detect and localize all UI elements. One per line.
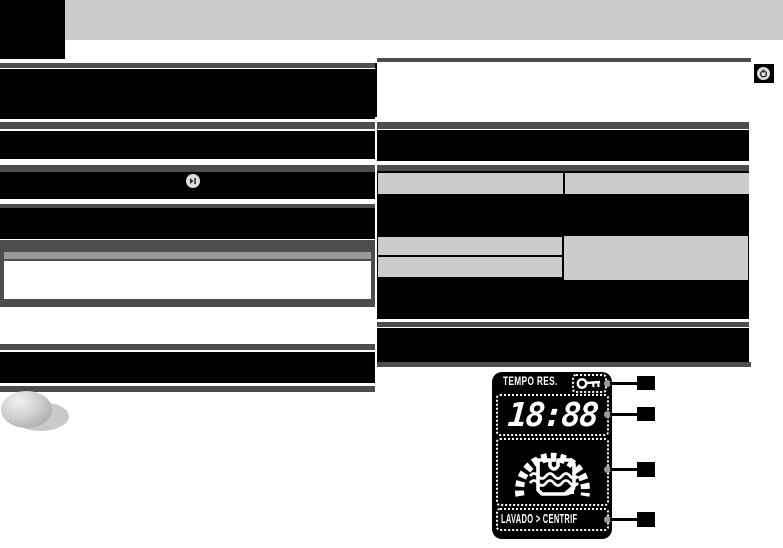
redacted-text-block <box>377 196 749 236</box>
redacted-text-block <box>0 208 375 239</box>
margin-rule <box>375 63 377 117</box>
power-icon <box>757 67 770 80</box>
callout-marker-1 <box>637 376 655 390</box>
connector-line <box>610 382 638 385</box>
connector-line <box>610 468 638 471</box>
redacted-text-block <box>0 172 375 199</box>
section-divider <box>377 58 751 62</box>
redacted-text-block <box>377 328 749 362</box>
remaining-time-display: 18:88 <box>496 394 609 436</box>
phase-indicator: LAVADO > CENTRIF <box>496 508 609 531</box>
wash-progress-display <box>496 438 609 506</box>
table-cell <box>378 173 563 194</box>
note-body <box>4 261 371 299</box>
redacted-text-block <box>0 131 375 159</box>
timer-label: TEMPO RES. <box>503 376 558 388</box>
connector-line <box>610 413 638 416</box>
note-box <box>0 240 375 307</box>
power-glyph <box>759 69 768 78</box>
seven-segment-time: 18:88 <box>497 396 609 434</box>
wash-drum-progress-icon <box>498 440 607 504</box>
redacted-text-block <box>0 352 375 383</box>
section-divider <box>0 165 375 172</box>
callout-marker-3 <box>637 462 655 477</box>
section-divider <box>377 322 749 327</box>
key-lock-indicator <box>572 374 607 393</box>
manual-page: TEMPO RES. 18:88 LAV <box>0 0 783 548</box>
section-divider <box>0 63 375 68</box>
table-cell <box>565 173 749 194</box>
display-panel: TEMPO RES. 18:88 LAV <box>492 372 612 539</box>
table-cell <box>378 237 562 255</box>
section-divider <box>0 386 375 392</box>
logo-block <box>0 0 65 59</box>
callout-marker-4 <box>637 512 655 527</box>
redacted-text-block <box>377 130 749 161</box>
table-cell <box>564 236 748 280</box>
redacted-text-block <box>0 69 375 119</box>
table-row <box>377 234 749 281</box>
section-divider <box>0 122 375 129</box>
start-pause-icon <box>186 174 200 188</box>
table-cell <box>378 257 562 277</box>
section-divider <box>377 122 749 129</box>
power-icon-box <box>754 64 774 83</box>
connector-line <box>610 518 638 521</box>
start-pause-glyph <box>188 176 198 186</box>
redacted-text-block <box>377 281 749 319</box>
section-divider <box>0 344 375 350</box>
decorative-sphere <box>1 391 52 428</box>
table-row <box>377 171 749 196</box>
header-banner <box>65 0 783 40</box>
callout-marker-2 <box>637 407 655 421</box>
note-title-bar <box>4 252 371 259</box>
key-lock-icon <box>574 376 605 391</box>
section-divider <box>377 362 751 367</box>
phase-text: LAVADO > CENTRIF <box>498 510 563 529</box>
